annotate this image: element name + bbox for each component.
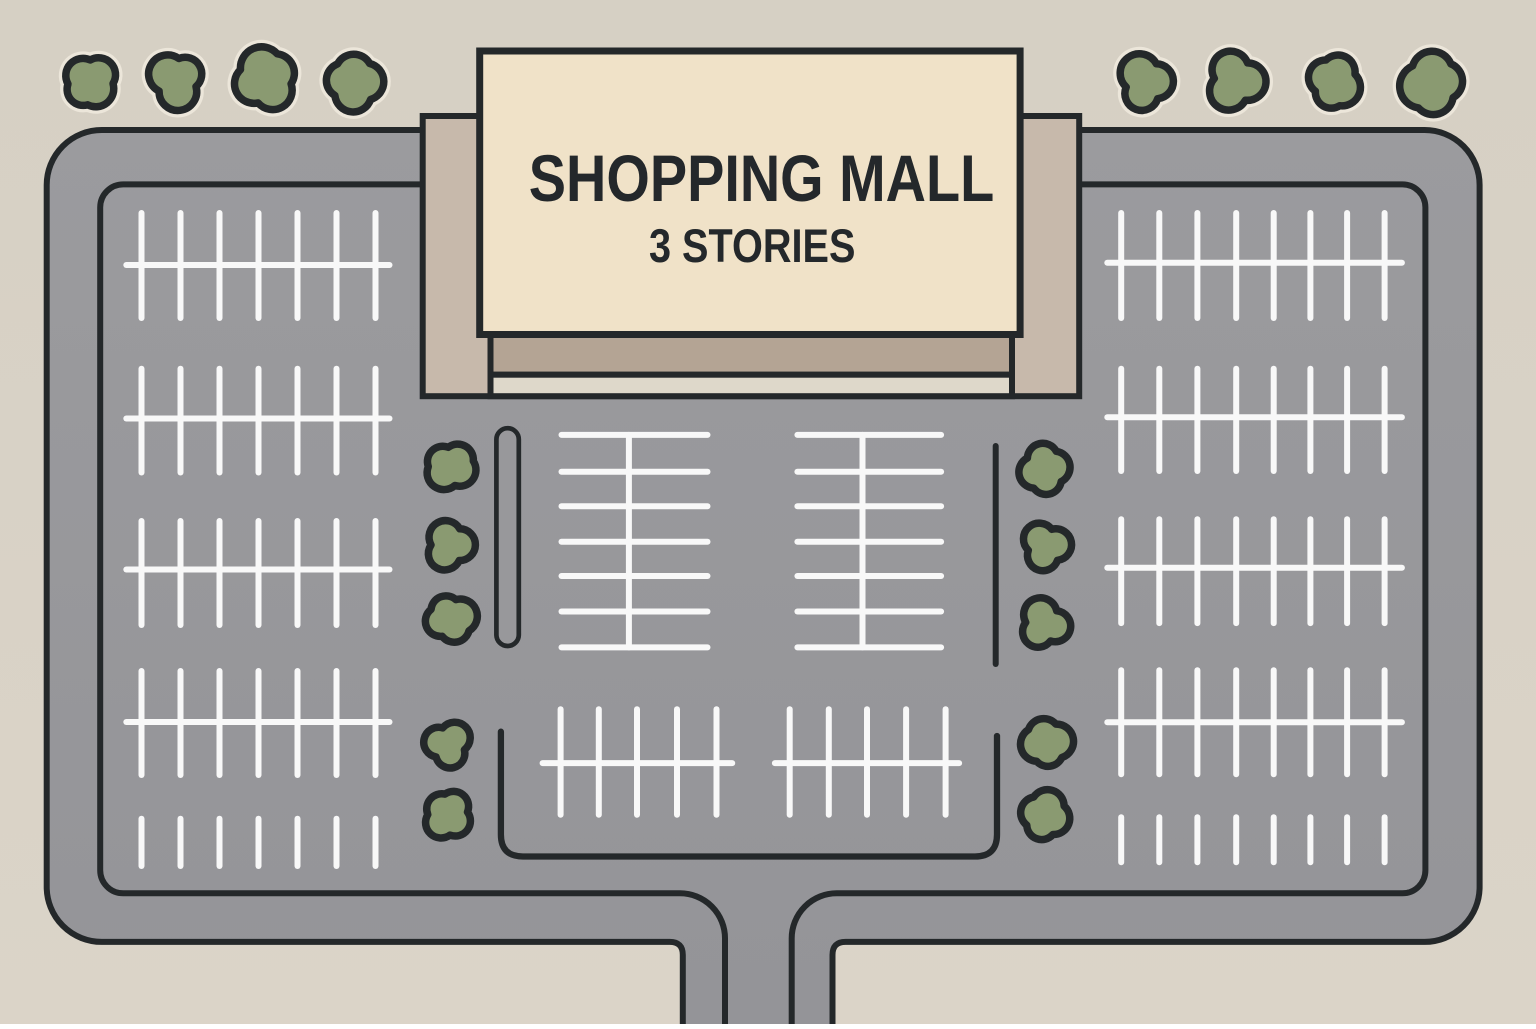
svg-text:SHOPPING MALL: SHOPPING MALL [529,141,994,215]
svg-text:3 STORIES: 3 STORIES [649,219,856,272]
